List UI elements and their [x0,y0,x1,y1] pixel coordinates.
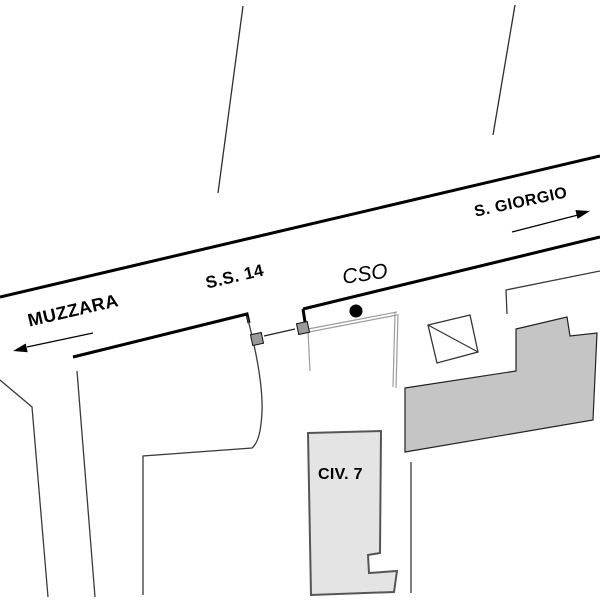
courtyard-wall-left [308,331,310,371]
parcel-boundary-right-corner [506,271,600,314]
road-south-edge-left-curb [73,314,249,357]
driveway-curved-boundary [143,316,262,595]
parcel-boundary-line-top-left [218,6,243,193]
courtyard-wall-right-outer [393,313,395,387]
site-map: MUZZARA S.S. 14 S. GIORGIO CSO CIV. 7 [0,0,600,600]
civ7-building [308,431,397,595]
parcel-boundary-line-top-right [493,5,515,135]
parcel-boundary-left [0,380,48,597]
muzzara-arrow-head-icon [13,344,28,353]
road-south-edge-end-stub [303,309,305,322]
giorgio-arrow-shaft [512,215,578,232]
gate-post-left [250,332,263,345]
muzzara-arrow-shaft [27,333,93,347]
courtyard-wall-right-inner [396,314,398,388]
gate-post-right [296,321,309,334]
civ7-building-label: CIV. 7 [318,467,363,483]
road-north-edge [0,156,600,297]
giorgio-arrow-head-icon [575,210,590,219]
cso-point-marker [350,305,363,318]
courtyard-wall-top-inner [309,315,397,332]
gate-line [264,329,295,336]
parcel-boundary-middle [77,371,95,597]
